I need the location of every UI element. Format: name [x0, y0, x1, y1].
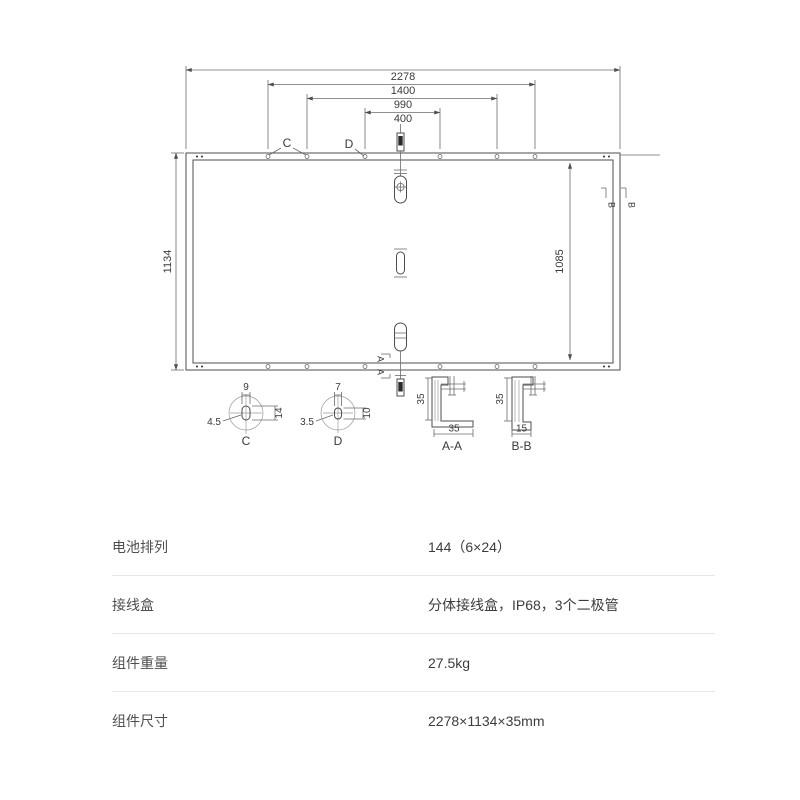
detail-c-width: 9 — [243, 382, 249, 393]
section-cut-a-marker-2: A — [376, 369, 386, 375]
dimension-400-value: 400 — [394, 113, 412, 125]
spec-value: 144（6×24） — [428, 537, 511, 557]
section-bb-height: 35 — [495, 393, 506, 405]
dimension-1134: 1134 — [162, 153, 184, 370]
spec-table: 电池排列 144（6×24） 接线盒 分体接线盒，IP68，3个二极管 组件重量… — [112, 518, 715, 749]
dimension-1085-value: 1085 — [554, 249, 566, 273]
panel-frame — [186, 153, 660, 370]
spec-label: 电池排列 — [112, 537, 428, 557]
detail-d: 7 10 3.5 D — [300, 382, 373, 448]
spec-row-junction-box: 接线盒 分体接线盒，IP68，3个二极管 — [112, 576, 715, 634]
section-cut-b: B B — [601, 188, 637, 208]
dimension-1085: 1085 — [554, 163, 570, 360]
detail-d-label: D — [334, 434, 343, 448]
detail-d-width: 7 — [335, 382, 341, 393]
hole-callout-d-label: D — [345, 137, 354, 151]
spec-value: 27.5kg — [428, 655, 470, 671]
section-bb-width: 15 — [516, 424, 528, 435]
detail-c-label: C — [242, 434, 251, 448]
spec-value: 2278×1134×35mm — [428, 713, 545, 729]
spec-row-cell-layout: 电池排列 144（6×24） — [112, 518, 715, 576]
section-cut-b-marker-2: B — [627, 202, 637, 208]
section-cut-a: A A — [376, 354, 391, 378]
section-aa-label: A-A — [442, 439, 462, 453]
hole-callout-c: C — [269, 136, 306, 155]
dimension-990-value: 990 — [394, 99, 412, 111]
section-aa-height: 35 — [416, 393, 427, 405]
section-aa-width: 35 — [448, 424, 460, 435]
dimension-1400-value: 1400 — [391, 85, 415, 97]
detail-c-radius: 4.5 — [207, 417, 221, 428]
dimension-1134-value: 1134 — [162, 250, 174, 274]
hole-callout-c-label: C — [283, 136, 292, 150]
section-cut-a-marker-1: A — [376, 356, 386, 362]
connector-bottom — [395, 323, 407, 396]
spec-label: 接线盒 — [112, 595, 428, 615]
detail-c-height: 14 — [274, 407, 285, 419]
section-bb: 35 15 B-B — [495, 376, 546, 453]
spec-label: 组件尺寸 — [112, 711, 428, 731]
technical-drawing: 2278 1400 990 400 C D — [0, 0, 800, 505]
detail-c: 9 14 4.5 C — [207, 382, 285, 448]
dimension-2278-value: 2278 — [391, 71, 415, 83]
spec-row-weight: 组件重量 27.5kg — [112, 634, 715, 692]
junction-box-top — [394, 124, 407, 203]
section-bb-label: B-B — [511, 439, 531, 453]
section-aa: 35 35 A-A — [416, 376, 473, 453]
detail-d-height: 10 — [362, 407, 373, 419]
section-cut-b-marker-1: B — [607, 202, 617, 208]
detail-d-radius: 3.5 — [300, 417, 314, 428]
spec-row-dimensions: 组件尺寸 2278×1134×35mm — [112, 692, 715, 749]
spec-label: 组件重量 — [112, 653, 428, 673]
grounding-slot-center — [394, 249, 407, 277]
page: 2278 1400 990 400 C D — [0, 0, 800, 800]
spec-value: 分体接线盒，IP68，3个二极管 — [428, 595, 619, 615]
